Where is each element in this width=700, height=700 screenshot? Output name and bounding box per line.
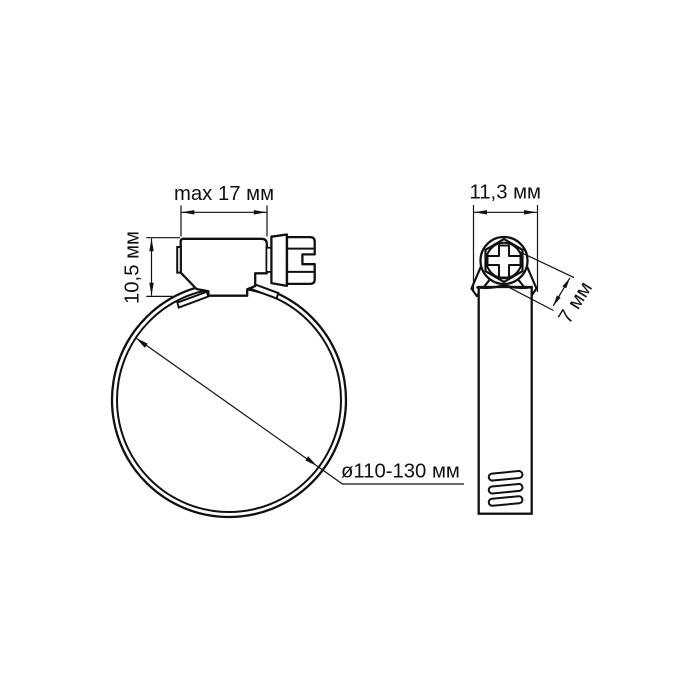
svg-text:11,3 мм: 11,3 мм — [470, 182, 542, 204]
svg-text:10,5 мм: 10,5 мм — [122, 231, 144, 304]
svg-text:max 17 мм: max 17 мм — [174, 183, 274, 205]
svg-text:ø110-130 мм: ø110-130 мм — [341, 461, 460, 483]
